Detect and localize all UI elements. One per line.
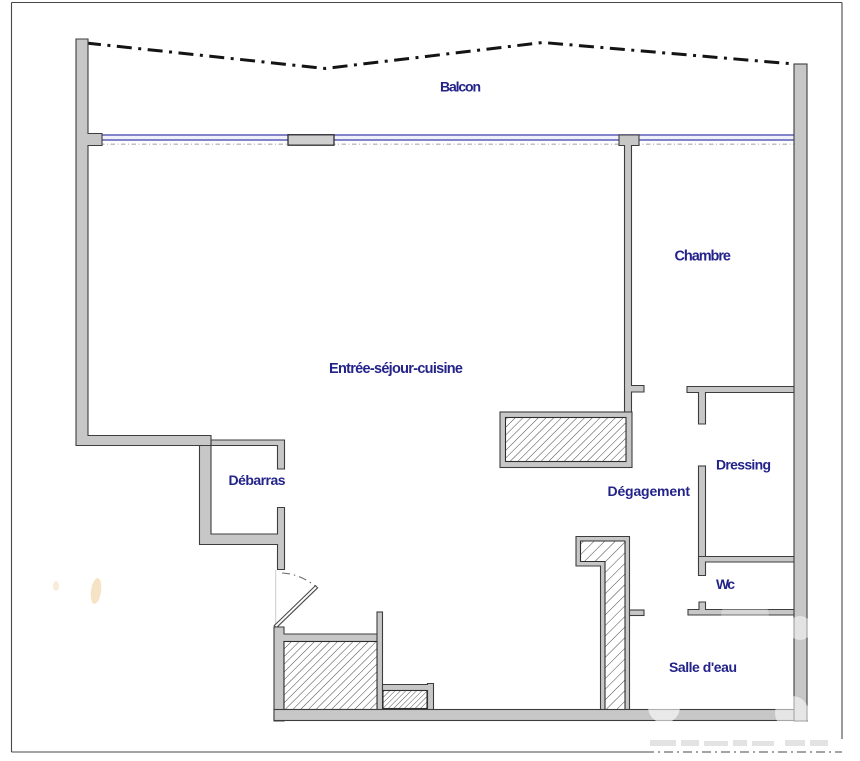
svg-text:Dressing: Dressing xyxy=(716,457,771,473)
svg-text:Entrée-séjour-cuisine: Entrée-séjour-cuisine xyxy=(329,361,463,377)
svg-text:Chambre: Chambre xyxy=(675,249,732,265)
svg-text:Salle d'eau: Salle d'eau xyxy=(669,659,737,675)
svg-text:Dégagement: Dégagement xyxy=(608,483,691,499)
svg-text:Balcon: Balcon xyxy=(440,79,481,95)
svg-text:Wc: Wc xyxy=(716,576,735,592)
svg-text:Débarras: Débarras xyxy=(229,472,286,488)
